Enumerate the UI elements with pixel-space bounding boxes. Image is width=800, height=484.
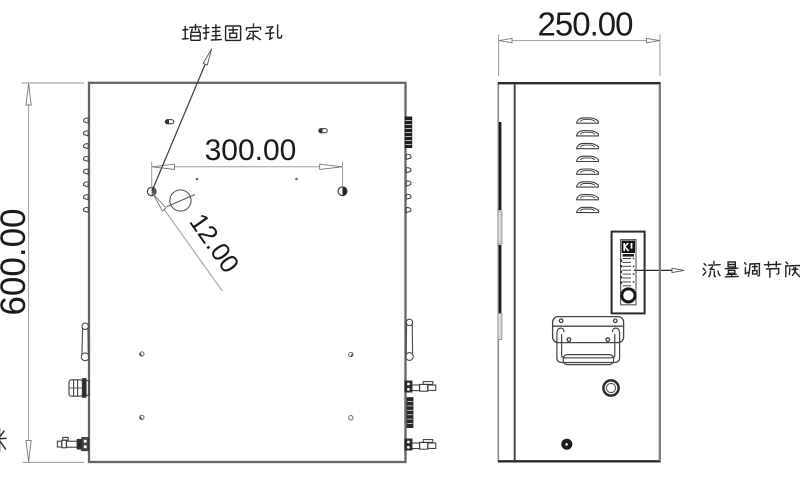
svg-text:600.00: 600.00 bbox=[0, 208, 33, 315]
svg-text:250.00: 250.00 bbox=[538, 6, 634, 43]
svg-text:300.00: 300.00 bbox=[205, 134, 297, 167]
svg-text:12.00: 12.00 bbox=[184, 208, 246, 279]
